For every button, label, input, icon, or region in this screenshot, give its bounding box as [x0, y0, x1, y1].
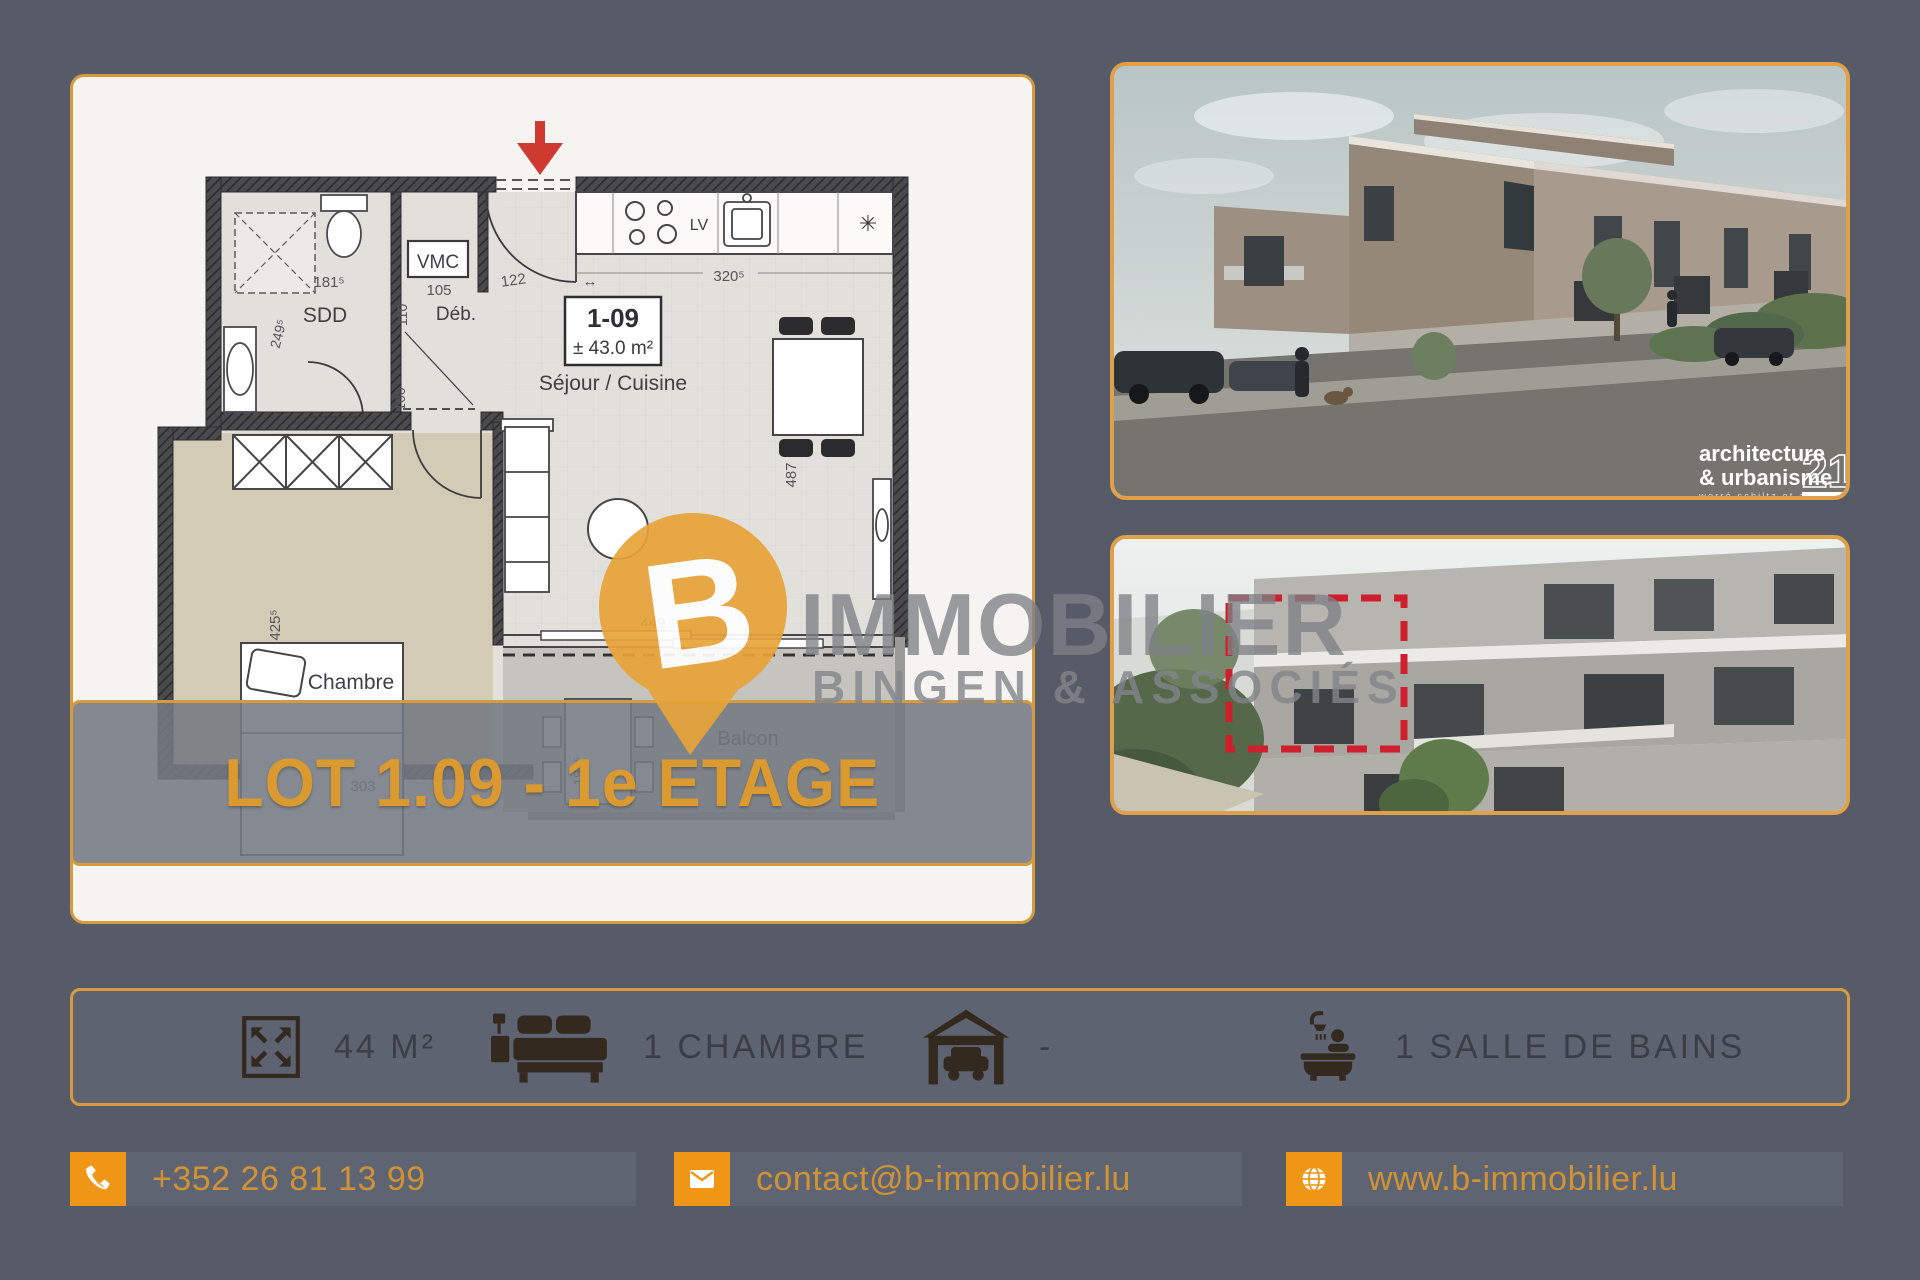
feature-bathrooms: 1 SALLE DE BAINS — [1291, 991, 1745, 1103]
feature-garage: - — [923, 991, 1053, 1103]
door-span-icon: ↔ — [583, 273, 598, 290]
contact-email[interactable]: contact@b-immobilier.lu — [674, 1152, 1242, 1206]
dim-425: 425⁵ — [267, 609, 284, 640]
bed-icon — [491, 1007, 613, 1087]
unit-area: ± 43.0 m² — [573, 338, 653, 359]
sofa — [501, 419, 553, 592]
pin-letter: B — [633, 520, 764, 701]
flyer-page: VMC 105 Déb. 110 100 SDD 181⁵ 249⁵ 122 ↔… — [0, 0, 1920, 1280]
architect-caption: architecture & urbanisme 21 worré schilt… — [1698, 441, 1850, 500]
entrance-dashes — [496, 180, 576, 189]
snowflake-icon: ✳ — [859, 211, 877, 236]
label-sdd: SDD — [303, 304, 347, 327]
brand-pin-logo: B — [599, 513, 787, 755]
dim-105: 105 — [426, 282, 451, 299]
label-living: Séjour / Cuisine — [539, 372, 687, 395]
email-tile[interactable] — [674, 1152, 730, 1206]
washbasin — [224, 327, 256, 412]
entrance-arrow-icon — [517, 121, 563, 175]
feature-bathrooms-label: 1 SALLE DE BAINS — [1395, 1028, 1745, 1067]
feature-area-label: 44 M² — [334, 1028, 436, 1067]
kitchen-counter — [576, 192, 893, 254]
dim-181: 181⁵ — [313, 274, 344, 291]
feature-bedrooms: 1 CHAMBRE — [491, 991, 868, 1103]
lot-banner: LOT 1.09 - 1e ETAGE — [70, 700, 1035, 866]
feature-garage-label: - — [1039, 1028, 1053, 1067]
unit-number: 1-09 — [587, 303, 639, 333]
watermark-bingen: BINGEN & ASSOCIÉS — [812, 660, 1405, 714]
website-url[interactable]: www.b-immobilier.lu — [1368, 1160, 1678, 1199]
label-lv: LV — [690, 217, 709, 234]
contact-website[interactable]: www.b-immobilier.lu — [1286, 1152, 1843, 1206]
shower — [235, 213, 315, 293]
website-strip: www.b-immobilier.lu — [1342, 1152, 1843, 1206]
building-render: architecture & urbanisme 21 worré schilt… — [1114, 66, 1850, 500]
caption-number: 21 — [1802, 445, 1850, 497]
email-address[interactable]: contact@b-immobilier.lu — [756, 1160, 1131, 1199]
label-bedroom: Chambre — [308, 671, 394, 694]
dim-122: 122 — [500, 270, 527, 290]
lot-banner-label: LOT 1.09 - 1e ETAGE — [225, 744, 881, 822]
garage-icon — [923, 1009, 1009, 1085]
caption-bar — [1802, 492, 1844, 499]
feature-bedrooms-label: 1 CHAMBRE — [643, 1028, 868, 1067]
feature-area: 44 M² — [238, 991, 436, 1103]
area-expand-icon — [238, 1012, 304, 1082]
bath-icon — [1291, 1010, 1365, 1084]
contact-phone[interactable]: +352 26 81 13 99 — [70, 1152, 636, 1206]
dim-320: 320⁵ — [713, 268, 744, 285]
dim-110: 110 — [394, 304, 410, 327]
phone-strip: +352 26 81 13 99 — [126, 1152, 636, 1206]
unit-label-box: 1-09 ± 43.0 m² — [565, 297, 661, 365]
dim-100: 100 — [392, 387, 408, 411]
globe-icon — [1299, 1164, 1329, 1194]
phone-icon — [83, 1164, 113, 1194]
dining-set — [773, 317, 863, 457]
sink — [724, 194, 770, 246]
email-strip: contact@b-immobilier.lu — [730, 1152, 1242, 1206]
phone-tile[interactable] — [70, 1152, 126, 1206]
website-tile[interactable] — [1286, 1152, 1342, 1206]
features-bar: 44 M² 1 CHAMBRE - — [70, 988, 1850, 1106]
label-deb: Déb. — [436, 304, 476, 325]
wardrobe — [233, 435, 392, 489]
dim-487: 487 — [783, 462, 800, 487]
label-vmc: VMC — [417, 252, 459, 273]
email-icon — [687, 1164, 717, 1194]
phone-number[interactable]: +352 26 81 13 99 — [152, 1160, 426, 1199]
photo-building-street: architecture & urbanisme 21 worré schilt… — [1110, 62, 1850, 500]
